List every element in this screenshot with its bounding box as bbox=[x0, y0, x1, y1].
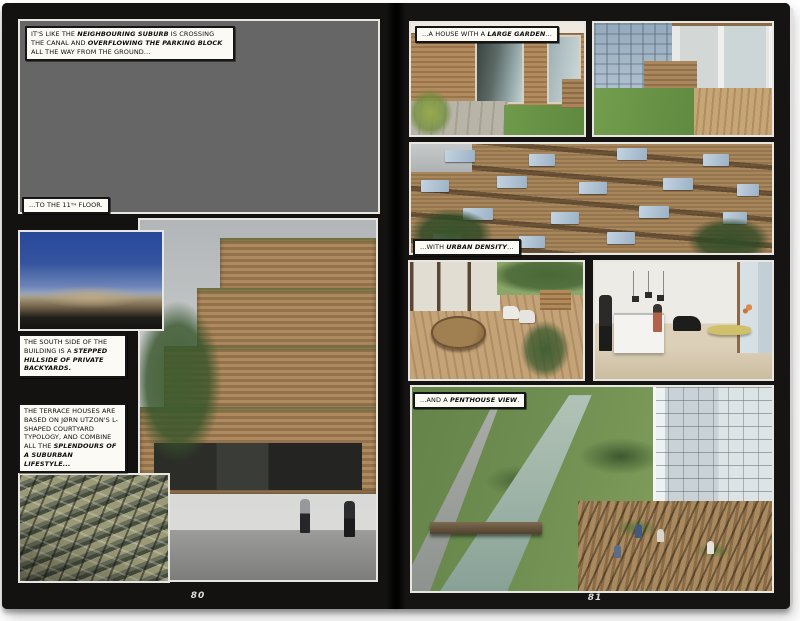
potted-plant bbox=[514, 313, 576, 381]
spread-gutter bbox=[386, 3, 406, 609]
glass-balustrade bbox=[617, 148, 647, 160]
glass-balustrade bbox=[579, 182, 607, 194]
photo-deck-terrace bbox=[408, 260, 585, 381]
interior-glimpse bbox=[410, 262, 500, 311]
book-scan: IT'S LIKE THE NEIGHBOURING SUBURB IS CRO… bbox=[0, 0, 800, 621]
page-number-left: 80 bbox=[2, 591, 394, 601]
person-on-terrace bbox=[635, 524, 642, 538]
glass-balustrade bbox=[639, 206, 669, 218]
planter-wall bbox=[562, 79, 584, 108]
person-walking-left bbox=[300, 499, 310, 533]
page-number-right: 81 bbox=[400, 593, 790, 603]
glass-door-center bbox=[475, 38, 524, 105]
shrub-bottom-right bbox=[675, 211, 774, 256]
foliage-corner bbox=[409, 82, 459, 137]
photo-mountain-model bbox=[18, 230, 164, 331]
glass-balustrade bbox=[445, 150, 475, 162]
person-on-terrace bbox=[657, 529, 664, 542]
photo-penthouse-view bbox=[410, 385, 774, 593]
glass-balustrade bbox=[663, 178, 693, 190]
dining-chairs bbox=[698, 330, 758, 365]
person-walking-right bbox=[344, 501, 355, 537]
glass-balustrade bbox=[519, 236, 545, 248]
photo-courtyard-grid bbox=[18, 473, 170, 583]
photo-roof-garden bbox=[592, 21, 774, 137]
photo-kitchen-interior bbox=[593, 260, 774, 381]
glass-balustrade bbox=[421, 180, 449, 192]
roof-terrace-wood bbox=[578, 501, 772, 591]
person-at-counter bbox=[599, 295, 612, 351]
pendant-lamps bbox=[629, 271, 668, 301]
person-on-terrace bbox=[614, 545, 621, 558]
glass-balustrade bbox=[703, 154, 729, 166]
photo-stepped-hillside bbox=[138, 218, 378, 582]
glass-balustrade bbox=[737, 184, 759, 196]
caption-penthouse-view: ...AND A PENTHOUSE VIEW. bbox=[413, 392, 526, 409]
book-spread: IT'S LIKE THE NEIGHBOURING SUBURB IS CRO… bbox=[2, 3, 790, 609]
flower-vase bbox=[740, 302, 758, 321]
caption-large-garden: ...A HOUSE WITH A LARGE GARDEN... bbox=[415, 26, 559, 43]
person-standing bbox=[653, 304, 662, 332]
foreground-wall bbox=[140, 530, 376, 580]
glass-balustrade bbox=[529, 154, 555, 166]
page-edge bbox=[790, 8, 793, 604]
footbridge bbox=[430, 522, 542, 534]
caption-south-side: THE SOUTH SIDE OF THE BUILDING IS A STEP… bbox=[18, 334, 127, 378]
glass-balustrade bbox=[551, 212, 579, 224]
planter-box bbox=[540, 290, 571, 310]
wooden-wall bbox=[644, 61, 697, 90]
black-chaise bbox=[673, 316, 701, 331]
terrace-step-top bbox=[220, 238, 376, 292]
glass-balustrade bbox=[497, 176, 527, 188]
round-picnic-table bbox=[431, 316, 486, 349]
lawn-patch bbox=[504, 105, 584, 135]
glass-balustrade bbox=[607, 232, 635, 244]
caption-urban-density: ...WITH URBAN DENSITY... bbox=[413, 239, 521, 256]
person-on-terrace bbox=[707, 541, 714, 554]
caption-terrace-houses: THE TERRACE HOUSES ARE BASED ON JØRN UTZ… bbox=[18, 403, 127, 473]
wood-deck bbox=[694, 88, 772, 135]
caption-11th-floor: ...TO THE 11TH FLOOR. bbox=[22, 197, 110, 214]
page-right: ...A HOUSE WITH A LARGE GARDEN... ...WIT… bbox=[400, 3, 790, 609]
caption-neighbouring-suburb: IT'S LIKE THE NEIGHBOURING SUBURB IS CRO… bbox=[25, 26, 235, 61]
lawn bbox=[594, 88, 694, 135]
page-left: IT'S LIKE THE NEIGHBOURING SUBURB IS CRO… bbox=[2, 3, 394, 609]
